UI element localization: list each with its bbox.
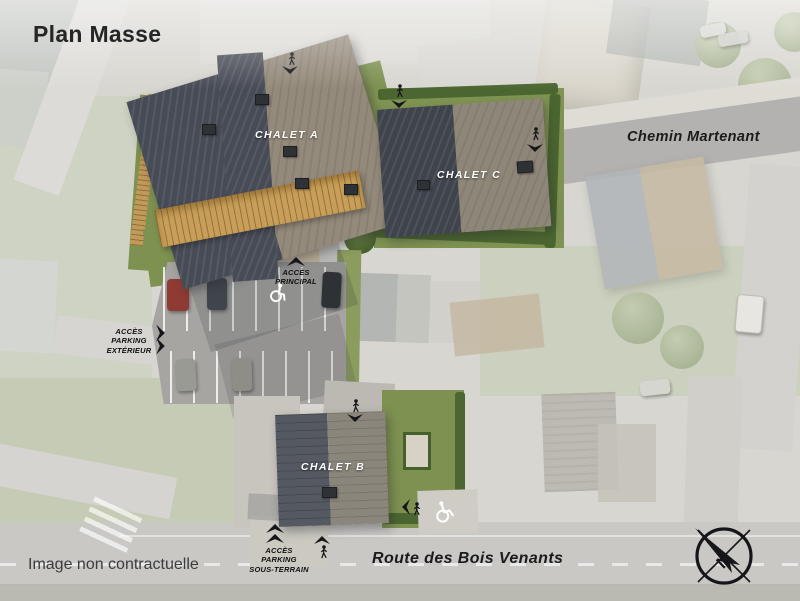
parked-car-dark [207, 278, 227, 310]
chalet-c-roof-light-wing [453, 98, 551, 232]
chalet-a-label: CHALET A [240, 129, 334, 141]
plan-masse-site-plan: Plan Masse CHALET A CHALET C CHALET B Ch… [0, 0, 800, 601]
roof-vent [322, 487, 337, 498]
parked-car-grey [231, 358, 252, 392]
compass-north-icon: N [686, 518, 762, 594]
aerial-house-mid-1 [355, 273, 431, 344]
chalet-c-label: CHALET C [422, 169, 516, 181]
aerial-field-bottom-edge [0, 584, 800, 601]
chimney [295, 178, 309, 189]
chimney [283, 146, 297, 157]
route-des-bois-venants-label: Route des Bois Venants [372, 550, 563, 568]
pedestrian-icon [319, 545, 329, 559]
chemin-martenant-label: Chemin Martenant [627, 129, 760, 145]
parked-car [639, 378, 670, 396]
aerial-road-bottom-right [683, 375, 742, 535]
direction-arrow-icon [314, 536, 330, 544]
pedestrian-icon [351, 399, 361, 413]
direction-arrow-icon [347, 414, 363, 422]
direction-arrow-icon [391, 100, 407, 108]
garden-shed [403, 432, 431, 470]
direction-arrow-icon [527, 144, 543, 152]
chimney [202, 124, 216, 135]
aerial-house-bottom-right-2 [598, 424, 656, 502]
chimney [417, 180, 430, 190]
chalet-b-label: CHALET B [286, 461, 380, 473]
chimney [344, 184, 358, 195]
pedestrian-icon [395, 84, 405, 98]
parked-car-grey [175, 358, 197, 391]
page-title: Plan Masse [33, 21, 161, 48]
direction-arrow-icon [287, 257, 305, 266]
acces-parking-exterieur-label: ACCÈS PARKING EXTÉRIEUR [97, 327, 161, 355]
tree-icon [774, 12, 800, 52]
pedestrian-icon [287, 52, 297, 66]
direction-arrow-icon [402, 499, 410, 515]
chimney [517, 160, 534, 173]
direction-arrow-icon [266, 534, 284, 543]
pedestrian-icon [412, 502, 422, 516]
acces-parking-sous-terrain-label: ACCÈS PARKING SOUS-TERRAIN [245, 546, 313, 574]
direction-arrow-icon [266, 524, 284, 533]
aerial-house-right [585, 156, 723, 289]
chimney [255, 94, 269, 105]
parked-car [734, 294, 764, 334]
disclaimer-text: Image non contractuelle [28, 556, 199, 574]
aerial-building-left [0, 258, 58, 353]
direction-arrow-icon [282, 66, 298, 74]
acces-principal-label: ACCÈS PRINCIPAL [263, 268, 329, 287]
aerial-house-mid-3 [449, 293, 544, 356]
pedestrian-icon [531, 127, 541, 141]
tree-icon [612, 292, 664, 344]
tree-icon [660, 325, 704, 369]
